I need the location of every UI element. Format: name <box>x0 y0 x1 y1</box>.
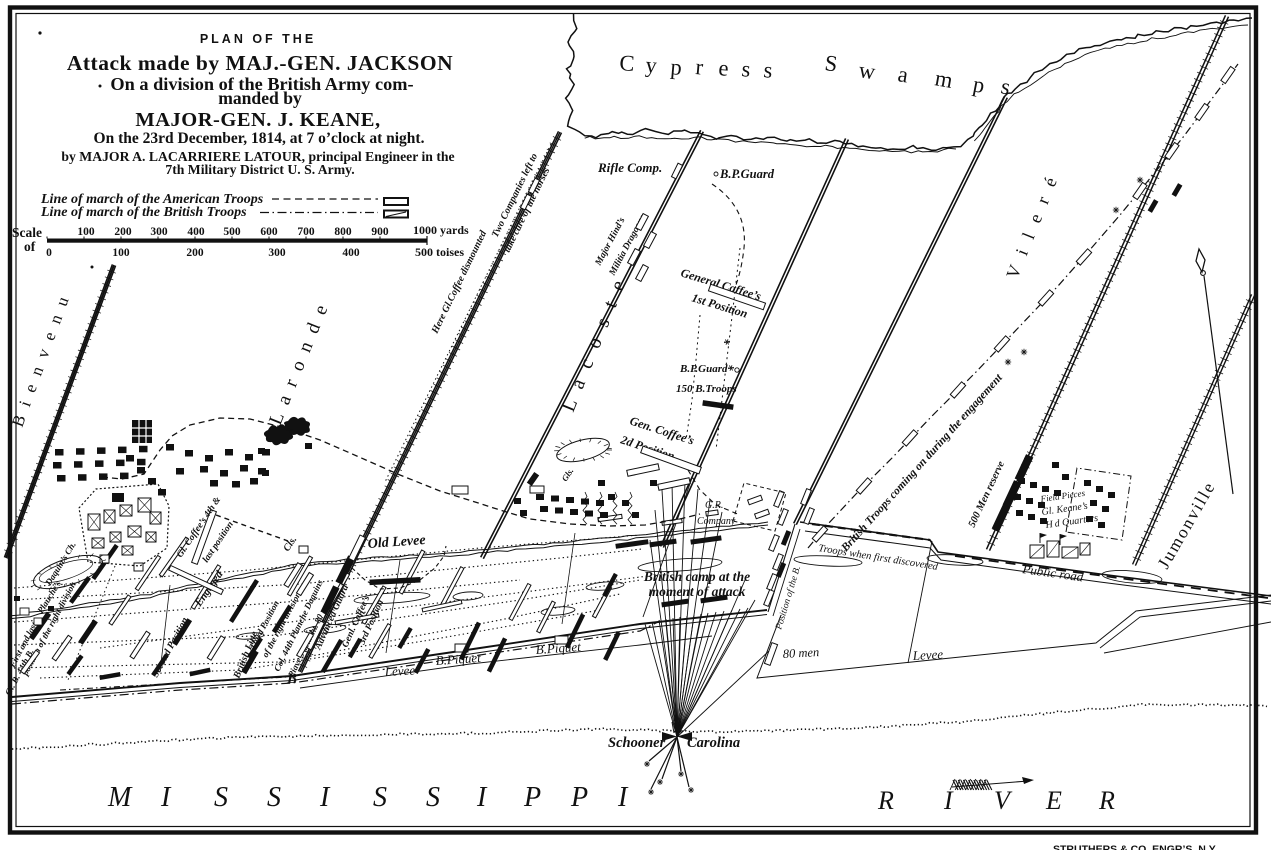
svg-text:I: I <box>476 782 488 813</box>
svg-text:150 B.Troops: 150 B.Troops <box>676 383 737 395</box>
svg-text:Attack made by MAJ.-GEN. JACKS: Attack made by MAJ.-GEN. JACKSON <box>67 51 453 75</box>
svg-text:p: p <box>670 54 683 80</box>
svg-text:M: M <box>107 782 133 813</box>
svg-text:manded by: manded by <box>218 88 302 108</box>
svg-text:Levee: Levee <box>911 646 943 663</box>
svg-text:of: of <box>24 239 36 254</box>
svg-text:1000 yards: 1000 yards <box>413 223 469 237</box>
svg-text:7th Military District U. S. Ar: 7th Military District U. S. Army. <box>165 162 354 177</box>
svg-text:800: 800 <box>334 226 352 238</box>
svg-text:I: I <box>160 782 172 813</box>
svg-text:900: 900 <box>371 226 389 238</box>
svg-text:Schooner: Schooner <box>608 735 666 751</box>
svg-text:G.R.: G.R. <box>705 500 723 511</box>
svg-text:400: 400 <box>342 247 360 259</box>
svg-text:500: 500 <box>223 226 241 238</box>
svg-text:S: S <box>373 782 387 813</box>
svg-text:200: 200 <box>114 226 132 238</box>
svg-text:STRUTHERS & CO. ENGR’S. N.Y.: STRUTHERS & CO. ENGR’S. N.Y. <box>1053 844 1218 850</box>
svg-text:E: E <box>1045 786 1062 815</box>
svg-text:P: P <box>523 782 541 813</box>
svg-text:500 toises: 500 toises <box>415 245 464 259</box>
svg-text:100: 100 <box>77 226 95 238</box>
svg-text:200: 200 <box>186 247 204 259</box>
svg-text:S: S <box>426 782 440 813</box>
svg-text:300: 300 <box>268 247 286 259</box>
svg-text:On the 23rd December, 1814, at: On the 23rd December, 1814, at 7 o’clock… <box>94 130 425 147</box>
svg-text:I: I <box>319 782 331 813</box>
svg-text:I: I <box>943 786 954 815</box>
svg-text:80 men: 80 men <box>782 645 819 661</box>
svg-text:700: 700 <box>297 226 315 238</box>
svg-text:MAJOR-GEN. J. KEANE,: MAJOR-GEN. J. KEANE, <box>135 109 380 131</box>
svg-text:Line of march of the British T: Line of march of the British Troops <box>40 205 247 220</box>
svg-text:Levee: Levee <box>383 662 415 679</box>
svg-text:B.Piquet: B.Piquet <box>535 639 581 657</box>
svg-text:Company: Company <box>697 516 736 527</box>
svg-text:S: S <box>214 782 228 813</box>
svg-text:B.Piquet: B.Piquet <box>435 650 481 668</box>
svg-text:Carolina: Carolina <box>687 735 740 751</box>
svg-text:Rifle Comp.: Rifle Comp. <box>597 160 662 175</box>
svg-text:R: R <box>1098 786 1115 815</box>
svg-text:C: C <box>619 50 636 76</box>
svg-text:B.P.Guard: B.P.Guard <box>679 363 728 375</box>
svg-text:P: P <box>570 782 588 813</box>
svg-text:Scale: Scale <box>12 225 42 240</box>
svg-text:PLAN OF THE: PLAN OF THE <box>200 32 316 46</box>
svg-text:S: S <box>267 782 281 813</box>
svg-text:0: 0 <box>46 247 52 259</box>
svg-text:300: 300 <box>150 226 168 238</box>
svg-text:R: R <box>877 786 894 815</box>
svg-text:400: 400 <box>187 226 205 238</box>
svg-text:100: 100 <box>112 247 130 259</box>
svg-text:I: I <box>617 782 629 813</box>
svg-text:600: 600 <box>260 226 278 238</box>
svg-text:B.P.Guard: B.P.Guard <box>719 167 775 181</box>
